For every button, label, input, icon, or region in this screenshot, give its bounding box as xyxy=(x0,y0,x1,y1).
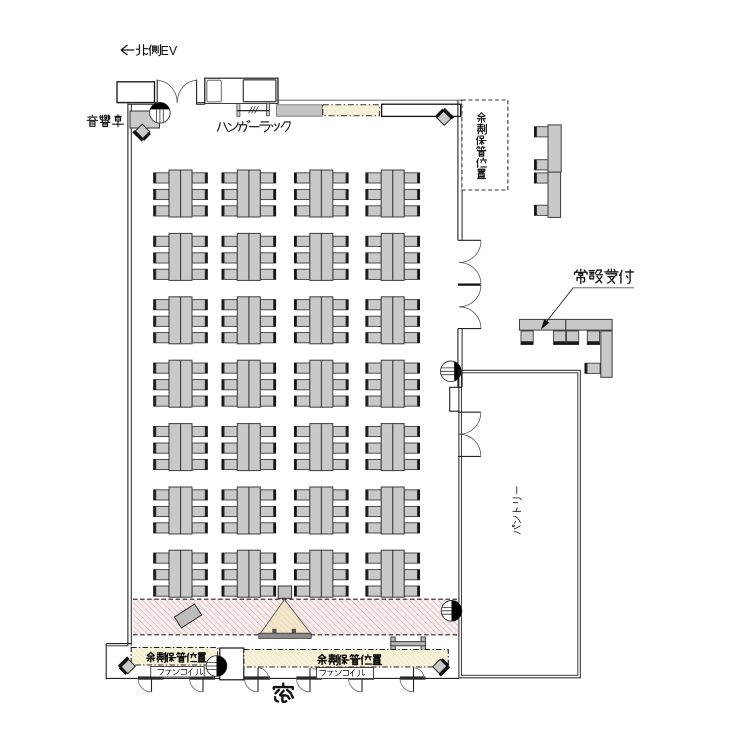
svg-text:EV: EV xyxy=(161,44,178,58)
